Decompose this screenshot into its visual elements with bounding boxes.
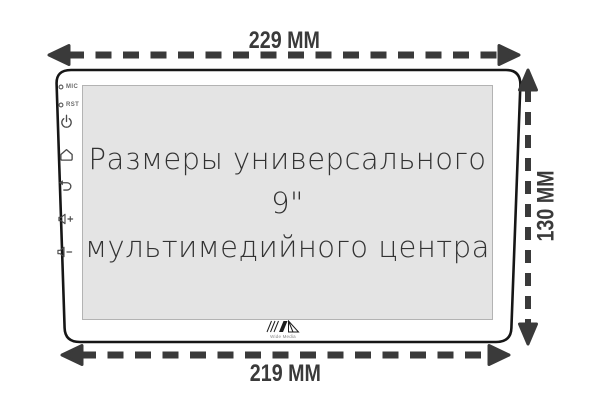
brand-logo: Wide Media: [264, 320, 302, 339]
volume-up-icon: [58, 213, 75, 225]
wide-media-logo-icon: [266, 320, 300, 333]
dimension-right-value: 130 MM: [532, 170, 560, 241]
volume-down-button: [57, 245, 74, 263]
power-button: [59, 114, 74, 134]
screen-caption-line1: Размеры универсального 9": [82, 137, 493, 225]
volume-up-button: [58, 212, 75, 230]
volume-down-icon: [57, 246, 74, 258]
back-button: [58, 179, 73, 198]
back-icon: [58, 179, 73, 193]
screen-caption: Размеры универсального 9" мультимедийног…: [82, 85, 493, 320]
mic-led-icon: [58, 84, 64, 90]
mic-label: MIC: [66, 84, 78, 90]
dimension-label-top: 229 MM: [50, 27, 518, 55]
dimension-top-value: 229 MM: [248, 27, 319, 55]
brand-logo-text: Wide Media: [270, 334, 296, 339]
multimedia-center-dimension-diagram: 229 MM 219 MM 130 MM Размеры универсальн…: [0, 0, 600, 411]
power-icon: [59, 114, 74, 129]
home-icon: [58, 147, 75, 162]
screen-caption-line2: мультимедийного центра: [85, 225, 490, 269]
dimension-label-bottom: 219 MM: [62, 360, 509, 388]
home-button: [58, 147, 75, 167]
rst-row: RST: [58, 102, 79, 108]
dimension-bottom-value: 219 MM: [250, 360, 321, 388]
rst-label: RST: [66, 102, 79, 108]
reset-led-icon: [58, 102, 64, 108]
mic-row: MIC: [58, 84, 78, 90]
